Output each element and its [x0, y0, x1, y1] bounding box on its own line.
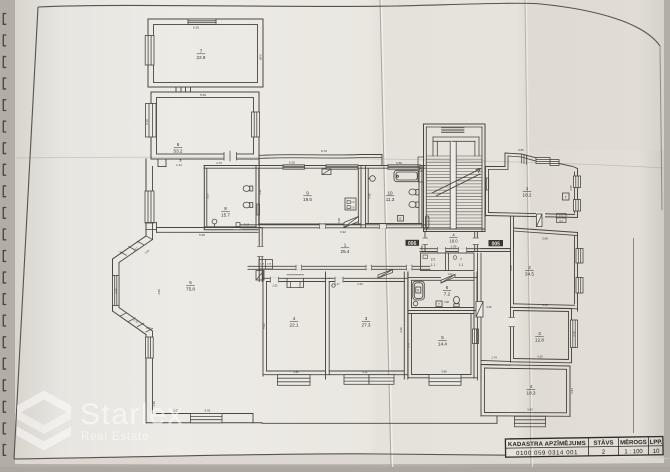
svg-text:1.44: 1.44: [176, 163, 182, 167]
svg-text:3.57: 3.57: [206, 193, 210, 199]
svg-text:18.3: 18.3: [527, 390, 536, 395]
svg-text:3.42: 3.42: [258, 189, 262, 195]
svg-text:3: 3: [365, 316, 368, 321]
svg-text:5: 5: [441, 335, 444, 340]
svg-text:3.68: 3.68: [259, 54, 263, 60]
svg-text:1.02: 1.02: [448, 273, 453, 276]
svg-text:9: 9: [306, 191, 309, 196]
svg-text:6: 6: [177, 142, 180, 147]
svg-text:19.5: 19.5: [303, 197, 312, 202]
svg-text:4.80: 4.80: [157, 289, 161, 295]
svg-text:22.1: 22.1: [290, 322, 299, 327]
svg-text:Real Estate: Real Estate: [81, 431, 149, 443]
svg-text:5.92: 5.92: [289, 160, 295, 164]
svg-text:Starlex: Starlex: [80, 398, 184, 431]
svg-text:3.89: 3.89: [441, 369, 447, 373]
svg-text:STĀVS: STĀVS: [593, 439, 613, 446]
svg-text:0.81: 0.81: [146, 327, 151, 330]
svg-text:1: 1: [526, 186, 529, 191]
svg-text:1: 1: [344, 243, 347, 248]
svg-text:8: 8: [224, 206, 227, 211]
svg-text:3.60: 3.60: [527, 408, 533, 412]
svg-text:4.36: 4.36: [399, 327, 403, 333]
svg-text:2: 2: [528, 265, 531, 270]
svg-text:3.16: 3.16: [572, 331, 576, 337]
svg-text:5.08: 5.08: [542, 237, 548, 241]
svg-text:5.95: 5.95: [199, 233, 205, 237]
svg-text:KADASTRA APZĪMĒJUMS: KADASTRA APZĪMĒJUMS: [508, 440, 586, 448]
svg-text:3.77: 3.77: [407, 342, 411, 348]
svg-text:5.84: 5.84: [200, 93, 206, 97]
svg-text:10: 10: [387, 191, 393, 196]
svg-text:27.9: 27.9: [559, 215, 564, 218]
svg-text:1.74: 1.74: [491, 355, 497, 359]
svg-text:6: 6: [446, 285, 449, 290]
svg-text:LPP.: LPP.: [650, 440, 663, 446]
svg-text:4.40: 4.40: [509, 265, 513, 271]
svg-text:006: 006: [408, 241, 417, 247]
svg-text:T: T: [438, 303, 440, 307]
svg-text:5.86: 5.86: [518, 148, 524, 152]
svg-text:25.4: 25.4: [341, 249, 350, 254]
svg-text:27.3: 27.3: [362, 322, 371, 327]
svg-text:3.50: 3.50: [396, 161, 402, 165]
svg-text:T: T: [565, 196, 567, 200]
svg-text:5: 5: [189, 280, 192, 285]
svg-text:MĒROGS: MĒROGS: [620, 439, 647, 446]
svg-text:2.17: 2.17: [334, 282, 340, 286]
svg-text:11.3: 11.3: [386, 197, 395, 202]
svg-text:2.0: 2.0: [431, 258, 436, 262]
svg-text:6.92: 6.92: [340, 230, 346, 234]
svg-text:5.91: 5.91: [205, 409, 211, 413]
svg-text:18.2: 18.2: [523, 192, 532, 197]
svg-text:4.20: 4.20: [537, 355, 543, 359]
svg-text:3.88: 3.88: [444, 301, 449, 304]
svg-text:34.5: 34.5: [525, 271, 534, 276]
svg-text:2.58: 2.58: [420, 245, 424, 251]
svg-text:1 : 100: 1 : 100: [624, 449, 643, 455]
svg-text:75.8: 75.8: [186, 286, 195, 291]
svg-text:3.10: 3.10: [145, 119, 149, 125]
svg-text:2.59: 2.59: [451, 244, 457, 248]
svg-text:22.9: 22.9: [197, 55, 206, 60]
svg-text:3.55: 3.55: [569, 185, 573, 191]
svg-text:5: 5: [180, 159, 182, 163]
svg-text:3: 3: [538, 331, 541, 336]
svg-text:0.82: 0.82: [337, 217, 341, 223]
svg-text:B: B: [417, 289, 419, 293]
svg-text:2.70: 2.70: [216, 161, 222, 165]
svg-text:2.84: 2.84: [570, 388, 574, 394]
svg-text:0100 059 0314 001: 0100 059 0314 001: [516, 450, 578, 457]
svg-text:0.90: 0.90: [487, 306, 492, 309]
svg-text:2.42: 2.42: [368, 193, 372, 199]
svg-text:6.25: 6.25: [193, 26, 199, 30]
svg-text:1.1: 1.1: [459, 263, 464, 267]
svg-text:5.93: 5.93: [262, 323, 266, 329]
svg-text:15.7: 15.7: [221, 212, 230, 217]
svg-text:2.50: 2.50: [357, 282, 363, 286]
svg-text:7.2: 7.2: [444, 291, 451, 296]
svg-text:005: 005: [492, 241, 501, 247]
svg-text:4: 4: [530, 384, 533, 389]
svg-text:4: 4: [293, 316, 296, 321]
svg-text:7: 7: [460, 258, 462, 262]
svg-text:12.8: 12.8: [535, 337, 544, 342]
svg-text:2.55: 2.55: [113, 288, 117, 294]
svg-text:10: 10: [653, 449, 660, 455]
svg-text:3.86: 3.86: [293, 370, 299, 374]
svg-text:18.0: 18.0: [449, 239, 458, 244]
svg-text:3.21: 3.21: [362, 370, 368, 374]
svg-text:14.4: 14.4: [438, 341, 447, 346]
svg-text:53.2: 53.2: [174, 148, 183, 153]
svg-text:7: 7: [200, 49, 203, 54]
svg-text:4.15: 4.15: [542, 303, 548, 307]
svg-text:9.72: 9.72: [321, 149, 327, 153]
svg-text:1.51: 1.51: [272, 284, 278, 288]
svg-text:1.1: 1.1: [431, 263, 436, 267]
